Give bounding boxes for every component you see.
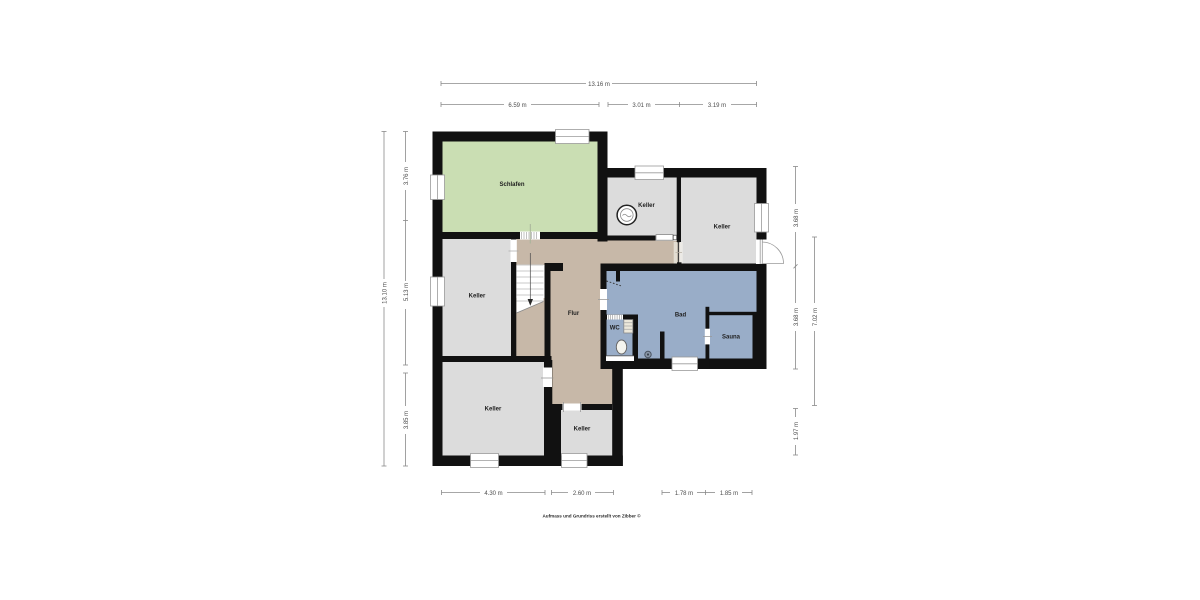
svg-text:1.85 m: 1.85 m: [720, 491, 738, 497]
svg-text:5.13 m: 5.13 m: [404, 283, 410, 301]
svg-text:Keller: Keller: [469, 294, 486, 300]
svg-text:2.60 m: 2.60 m: [573, 491, 591, 497]
svg-text:Aufmass und Grundriss erstellt: Aufmass und Grundriss erstellt von Zibbe…: [542, 513, 641, 519]
svg-text:Bad: Bad: [675, 313, 687, 319]
svg-text:3.85 m: 3.85 m: [404, 411, 410, 429]
svg-text:Sauna: Sauna: [722, 335, 741, 341]
svg-text:Keller: Keller: [638, 203, 655, 209]
svg-text:13.16 m: 13.16 m: [588, 82, 610, 88]
svg-text:Schlafen: Schlafen: [499, 182, 524, 188]
svg-text:3.68 m: 3.68 m: [794, 308, 800, 326]
svg-text:WC: WC: [610, 326, 621, 332]
svg-text:1.97 m: 1.97 m: [794, 422, 800, 440]
svg-text:Flur: Flur: [568, 311, 580, 317]
svg-text:Keller: Keller: [485, 407, 502, 413]
svg-text:Keller: Keller: [574, 427, 591, 433]
svg-text:Keller: Keller: [714, 225, 731, 231]
svg-text:7.02 m: 7.02 m: [813, 308, 819, 326]
svg-text:3.19 m: 3.19 m: [708, 103, 726, 109]
svg-text:1.78 m: 1.78 m: [675, 491, 693, 497]
svg-text:3.01 m: 3.01 m: [632, 103, 650, 109]
svg-text:6.59 m: 6.59 m: [508, 103, 526, 109]
svg-text:4.30 m: 4.30 m: [484, 491, 502, 497]
svg-text:3.76 m: 3.76 m: [404, 167, 410, 185]
svg-text:3.68 m: 3.68 m: [794, 209, 800, 227]
svg-text:13.10 m: 13.10 m: [383, 282, 389, 304]
